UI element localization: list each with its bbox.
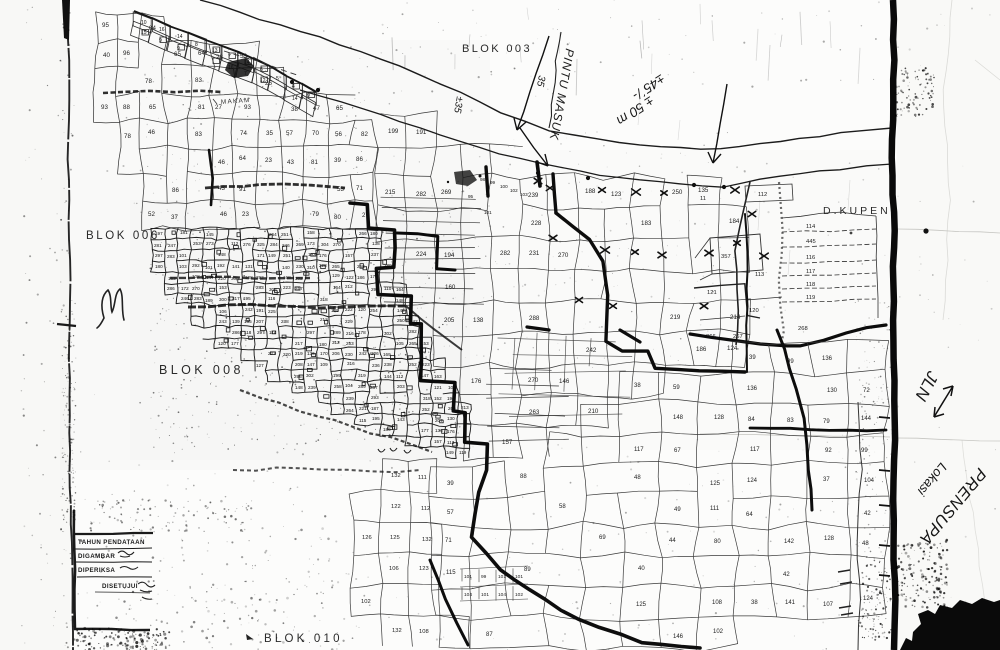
svg-text:95: 95 [102, 22, 109, 29]
svg-text:42: 42 [864, 511, 871, 517]
svg-text:DIGAMBAR: DIGAMBAR [78, 553, 115, 560]
svg-text:D.KUPEN: D.KUPEN [823, 205, 891, 217]
svg-text:132: 132 [391, 473, 401, 479]
svg-text:101: 101 [464, 574, 472, 580]
svg-text:107: 107 [823, 602, 834, 608]
svg-text:64: 64 [746, 512, 753, 518]
svg-text:141: 141 [785, 600, 796, 606]
svg-text:BLOK 008: BLOK 008 [159, 363, 244, 377]
svg-text:112: 112 [421, 506, 430, 512]
svg-text:132: 132 [422, 537, 432, 543]
svg-text:TAHUN PENDATAAN: TAHUN PENDATAAN [78, 539, 145, 546]
svg-text:71: 71 [445, 538, 452, 544]
svg-text:40: 40 [638, 566, 645, 572]
svg-text:88: 88 [520, 474, 527, 480]
svg-text:DIPERIKSA: DIPERIKSA [78, 567, 115, 574]
svg-text:14: 14 [177, 34, 183, 40]
svg-text:123: 123 [419, 566, 429, 572]
svg-text:124: 124 [863, 596, 874, 602]
svg-text:48: 48 [862, 541, 869, 547]
svg-text:37: 37 [823, 477, 830, 483]
svg-text:104: 104 [864, 478, 875, 484]
svg-text:BLOK 003: BLOK 003 [462, 43, 532, 55]
svg-text:128: 128 [824, 536, 835, 542]
svg-text:122: 122 [391, 504, 401, 510]
svg-text:111: 111 [710, 506, 720, 512]
svg-text:125: 125 [636, 602, 647, 608]
svg-text:115: 115 [446, 570, 456, 576]
svg-text:69: 69 [599, 535, 606, 541]
svg-text:108: 108 [712, 600, 723, 606]
svg-text:102: 102 [361, 599, 371, 605]
svg-text:57: 57 [447, 510, 454, 516]
svg-text:DISETUJUI: DISETUJUI [102, 583, 138, 590]
svg-text:80: 80 [714, 539, 721, 545]
svg-text:102: 102 [713, 629, 724, 635]
svg-text:89: 89 [524, 567, 531, 573]
svg-text:10: 10 [141, 20, 147, 26]
svg-text:49: 49 [674, 507, 681, 513]
svg-text:44: 44 [669, 538, 676, 544]
svg-text:104: 104 [464, 592, 472, 598]
svg-text:58: 58 [559, 504, 566, 510]
svg-text:101: 101 [481, 592, 489, 598]
svg-text:16: 16 [159, 27, 165, 33]
svg-text:104: 104 [498, 592, 506, 598]
svg-text:146: 146 [673, 634, 684, 640]
svg-text:39: 39 [447, 481, 454, 487]
svg-text:125: 125 [710, 481, 721, 487]
svg-text:124: 124 [747, 478, 758, 484]
svg-text:142: 142 [784, 539, 795, 545]
svg-text:102: 102 [515, 592, 523, 598]
svg-text:BLOK 006: BLOK 006 [86, 230, 160, 242]
svg-text:106: 106 [389, 566, 399, 572]
svg-text:99: 99 [481, 574, 487, 580]
svg-text:BLOK 010: BLOK 010 [264, 633, 343, 645]
svg-text:111: 111 [418, 475, 427, 481]
svg-text:87: 87 [486, 632, 493, 638]
svg-text:132: 132 [392, 628, 402, 634]
svg-text:48: 48 [634, 475, 641, 481]
svg-text:108: 108 [419, 629, 429, 635]
svg-text:38: 38 [751, 600, 758, 606]
svg-text:15: 15 [141, 30, 147, 36]
svg-text:126: 126 [362, 535, 372, 541]
svg-text:42: 42 [783, 572, 790, 578]
svg-text:125: 125 [390, 535, 400, 541]
